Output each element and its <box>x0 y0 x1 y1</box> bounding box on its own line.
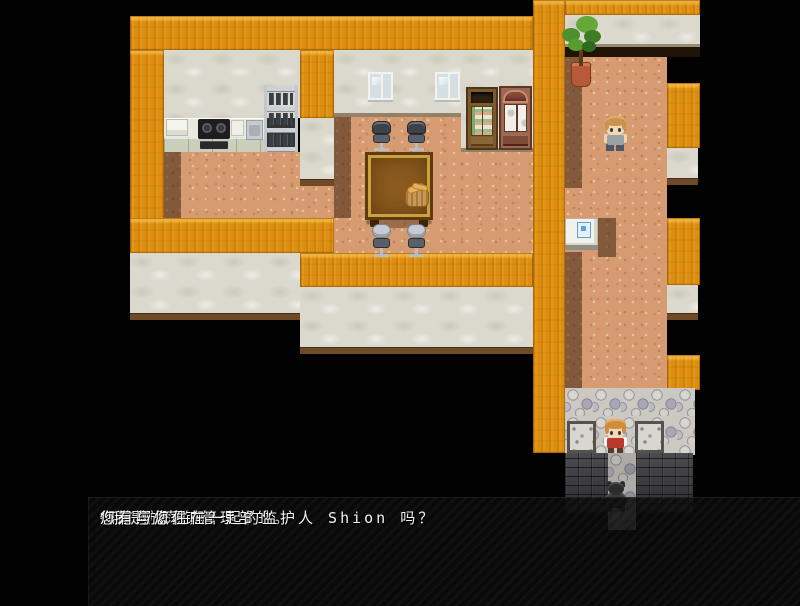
wall-top-north <box>130 16 533 50</box>
wall-divider-column <box>300 50 334 118</box>
chair <box>406 121 427 152</box>
burner-icon <box>202 123 212 133</box>
divider-wall-face <box>300 118 334 186</box>
chair-back <box>407 121 426 134</box>
chair-cushion <box>407 224 426 238</box>
dog-head <box>608 482 624 495</box>
chair-seat <box>373 238 390 248</box>
girl-eye <box>610 431 613 435</box>
panel-base <box>565 245 598 250</box>
switch-icon <box>577 222 591 238</box>
burner-icon <box>216 123 226 133</box>
kitchen-floor <box>164 152 300 218</box>
hutch-drawer <box>503 134 528 146</box>
chair-base <box>409 148 424 151</box>
girl-eye <box>618 431 621 435</box>
girl-hair-side <box>622 426 626 434</box>
npc-hair-side <box>605 123 609 130</box>
plant-leaves <box>582 41 596 52</box>
npc-child[interactable] <box>603 116 628 151</box>
shelf <box>267 87 295 91</box>
kitchen-sink <box>246 120 263 140</box>
segment-b-face <box>667 285 698 320</box>
wall-segment-b-top <box>667 218 700 285</box>
wall-segment-a-top <box>667 83 700 148</box>
npc-leg <box>616 144 624 151</box>
stone-relief-left <box>567 421 596 453</box>
bread-box <box>166 119 188 136</box>
chair-cushion <box>372 224 391 238</box>
hutch-glass <box>504 104 527 132</box>
chair-base <box>374 148 389 151</box>
oven-front <box>200 141 228 149</box>
cabinet-glass <box>471 106 493 136</box>
bottle-row <box>269 134 293 146</box>
npc-hair-side <box>622 123 626 130</box>
shelf <box>267 107 295 111</box>
wall-segment-c-top <box>667 355 700 390</box>
chair-back <box>372 121 391 134</box>
npc-eye <box>610 128 613 132</box>
stub-side-shadow <box>598 218 616 257</box>
npc-eye <box>618 128 621 132</box>
pantry-cabinet <box>466 87 498 150</box>
china-hutch <box>499 86 532 150</box>
chair <box>406 224 427 261</box>
chair <box>371 121 392 152</box>
chair-base <box>374 254 389 257</box>
message-window[interactable]: 行政人员 “我是放荡镇管理部的。 你是翔太君吗？ 您有与您住在一起的监护人 Sh… <box>88 497 800 606</box>
wall-bottom-left-top <box>130 218 334 253</box>
chair-seat <box>408 134 425 143</box>
npc-leg <box>606 144 614 151</box>
kitchen-floor-shadow <box>164 152 181 218</box>
segment-a-face <box>667 148 698 185</box>
south-wall-right-face <box>300 287 533 354</box>
chair-base <box>409 254 424 257</box>
window <box>435 72 460 100</box>
shelf <box>267 147 295 151</box>
player-girl[interactable] <box>603 419 628 453</box>
dining-floor-shadow <box>334 117 351 218</box>
shelf <box>267 128 295 132</box>
chair-seat <box>373 134 390 143</box>
cabinet-slot <box>471 92 493 103</box>
dialog-line-3: 您有与您住在一起的监护人 Shion 吗？ <box>100 505 436 532</box>
wall-top-northeast <box>565 0 700 15</box>
corridor-shadow-lower <box>565 252 582 388</box>
wall-control-panel <box>565 218 598 247</box>
chair <box>371 224 392 261</box>
game-viewport[interactable]: 行政人员 “我是放荡镇管理部的。 你是翔太君吗？ 您有与您住在一起的监护人 Sh… <box>0 0 800 606</box>
window <box>368 72 393 100</box>
stove-cooktop <box>198 119 230 139</box>
bottle-row <box>269 93 293 105</box>
doorway-floor <box>300 186 334 218</box>
cutting-board <box>231 120 244 136</box>
cabinet-drawer <box>471 137 493 146</box>
potted-plant <box>560 14 604 88</box>
stone-relief-right <box>635 421 664 453</box>
girl-hair-side <box>605 426 609 434</box>
chair-seat <box>408 238 425 248</box>
bottle-row <box>269 113 293 125</box>
metal-shelf-rack <box>264 85 298 152</box>
hutch-arch <box>503 90 528 103</box>
south-wall-left-face <box>130 253 300 320</box>
